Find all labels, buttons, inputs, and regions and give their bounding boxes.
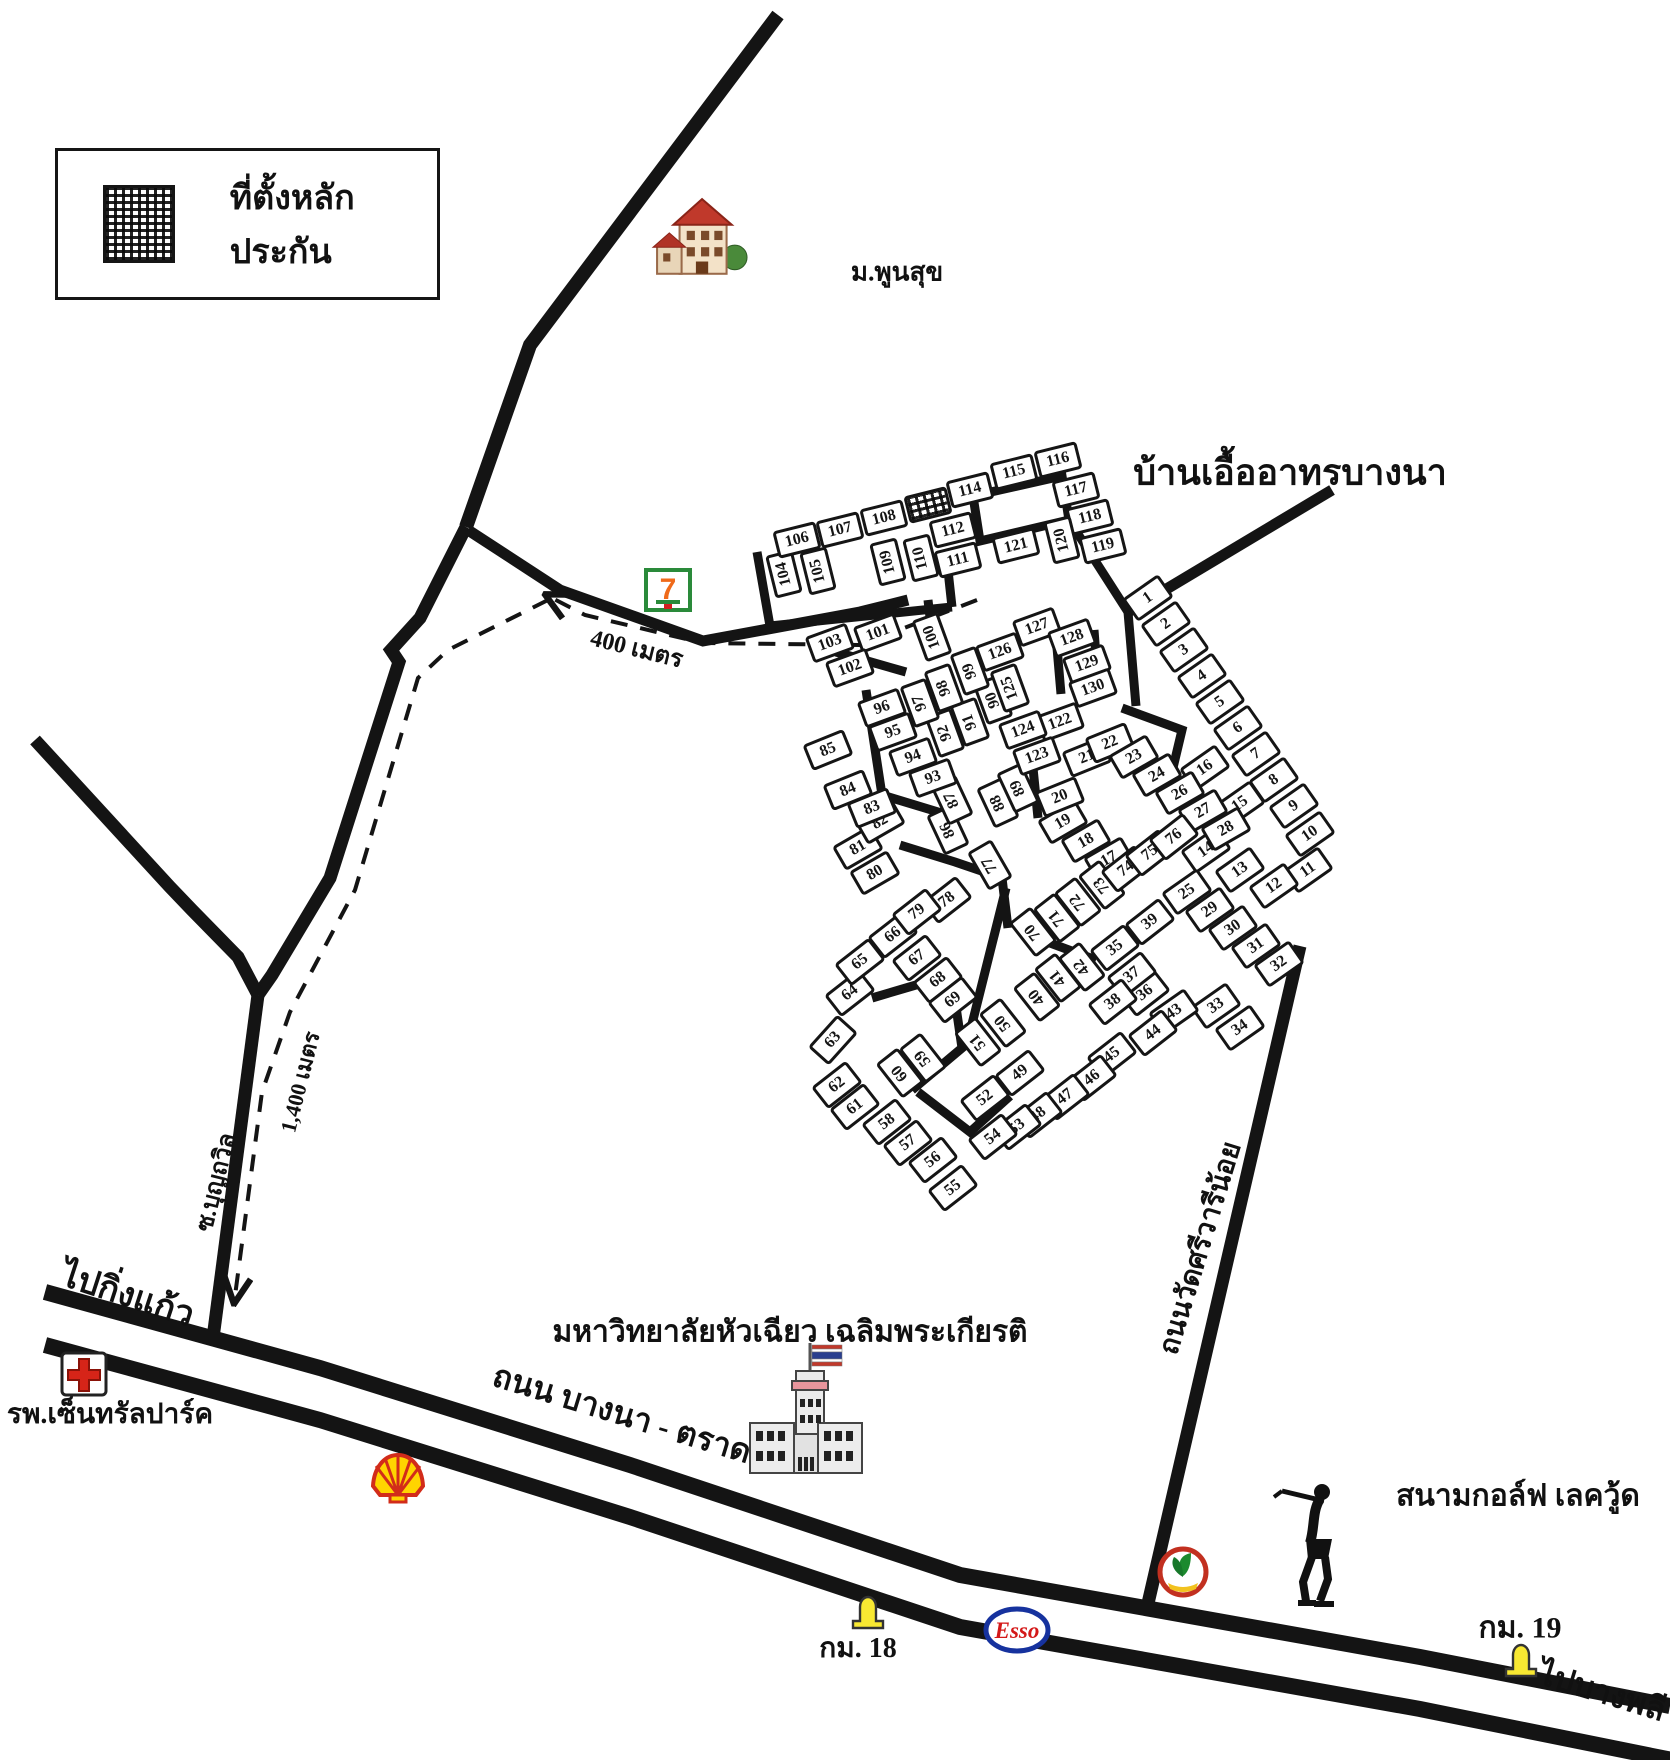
- village-house-icon: [648, 192, 752, 284]
- legend-hatch-swatch: [103, 185, 175, 263]
- university-building-icon: [744, 1339, 868, 1477]
- km18-label: กม. 18: [819, 1626, 896, 1670]
- hospital-cross-icon: [60, 1351, 108, 1397]
- seven-eleven-icon: [644, 568, 692, 612]
- estate-title: บ้านเอื้ออาทรบางนา: [1133, 444, 1447, 501]
- km19-marker-icon: [1502, 1642, 1540, 1678]
- village-label: ม.พูนสุข: [851, 252, 943, 293]
- west-branch-road: [35, 740, 258, 995]
- hospital-label: รพ.เซ็นทรัลปาร์ค: [7, 1392, 213, 1436]
- legend-title: ที่ตั้งหลักประกัน: [230, 170, 437, 278]
- golfer-icon: [1270, 1479, 1362, 1611]
- site-location-map: 7: [0, 0, 1670, 1760]
- estate-road: [1128, 612, 1136, 706]
- soi-road-upper: [258, 527, 466, 995]
- legend-box: ที่ตั้งหลักประกัน: [55, 148, 440, 300]
- golf-course-label: สนามกอล์ฟ เลควู้ด: [1396, 1473, 1640, 1520]
- bangchak-station-icon: [1155, 1544, 1211, 1600]
- shell-station-icon: [369, 1450, 427, 1504]
- esso-station-icon: [983, 1605, 1051, 1655]
- km18-marker-icon: [849, 1594, 887, 1630]
